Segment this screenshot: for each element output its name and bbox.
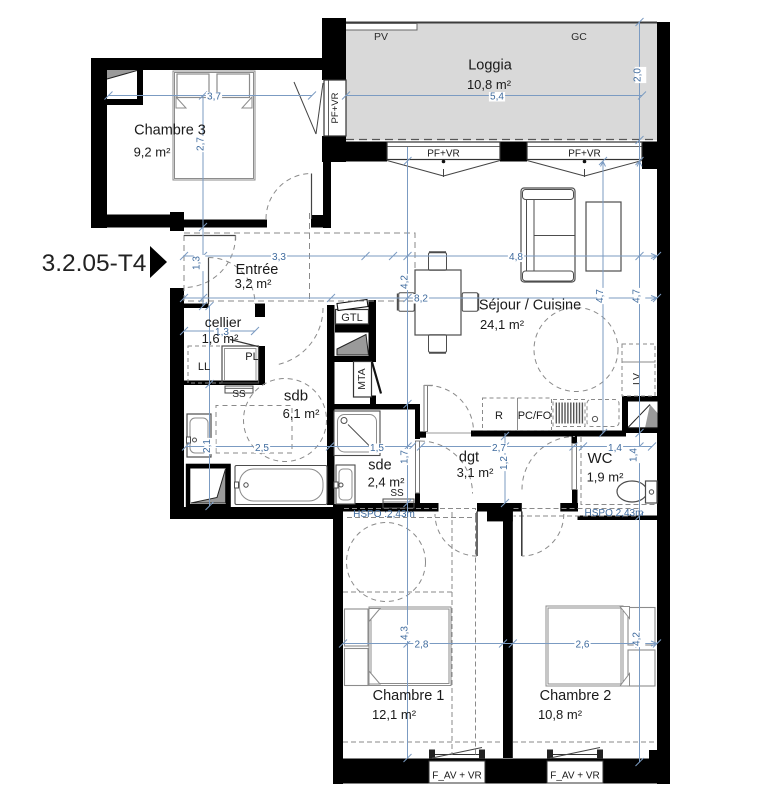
svg-text:2,5: 2,5 xyxy=(255,443,269,454)
svg-text:4,2: 4,2 xyxy=(632,632,643,646)
svg-text:4,3: 4,3 xyxy=(400,626,411,640)
svg-text:9,2 m²: 9,2 m² xyxy=(134,145,172,160)
svg-text:PF+VR: PF+VR xyxy=(427,149,460,160)
svg-text:SS: SS xyxy=(390,488,404,499)
svg-text:2,7: 2,7 xyxy=(196,137,207,151)
svg-text:Chambre 3: Chambre 3 xyxy=(134,123,206,139)
svg-text:F_AV + VR: F_AV + VR xyxy=(432,771,482,782)
svg-text:1,5: 1,5 xyxy=(370,443,384,454)
svg-text:2,0: 2,0 xyxy=(633,68,644,82)
svg-text:SS: SS xyxy=(232,389,246,400)
svg-text:5,4: 5,4 xyxy=(490,92,504,103)
svg-text:1,6 m²: 1,6 m² xyxy=(202,331,240,346)
svg-text:PF+VR: PF+VR xyxy=(568,149,601,160)
svg-text:MTA: MTA xyxy=(356,368,368,389)
svg-text:LV: LV xyxy=(631,373,643,385)
svg-text:4,7: 4,7 xyxy=(595,289,606,303)
svg-text:4,8: 4,8 xyxy=(509,252,523,263)
svg-text:PL: PL xyxy=(245,351,258,363)
svg-text:sde: sde xyxy=(368,458,391,474)
svg-text:1,9 m²: 1,9 m² xyxy=(587,470,625,485)
svg-text:1,2: 1,2 xyxy=(499,456,510,470)
svg-text:3,2 m²: 3,2 m² xyxy=(235,276,273,291)
svg-text:3,7: 3,7 xyxy=(207,92,221,103)
svg-text:1,3: 1,3 xyxy=(192,256,203,270)
svg-text:2,8: 2,8 xyxy=(415,640,429,651)
svg-text:1,4: 1,4 xyxy=(629,448,640,462)
svg-text:PC/FO: PC/FO xyxy=(518,410,552,422)
svg-text:Séjour / Cuisine: Séjour / Cuisine xyxy=(479,298,581,314)
svg-text:PF+VR: PF+VR xyxy=(330,92,341,123)
svg-text:12,1 m²: 12,1 m² xyxy=(372,707,417,722)
svg-text:cellier: cellier xyxy=(205,314,242,330)
svg-text:3,1 m²: 3,1 m² xyxy=(457,465,495,480)
svg-text:4,7: 4,7 xyxy=(632,289,643,303)
svg-text:1,7: 1,7 xyxy=(400,450,411,464)
svg-text:F_AV + VR: F_AV + VR xyxy=(550,771,600,782)
svg-text:3.2.05-T4: 3.2.05-T4 xyxy=(42,250,147,277)
svg-text:Chambre 1: Chambre 1 xyxy=(373,688,445,704)
svg-text:HSPO 2,43m: HSPO 2,43m xyxy=(585,508,644,519)
svg-text:2,1: 2,1 xyxy=(202,439,213,453)
svg-text:LL: LL xyxy=(198,361,210,373)
svg-text:sdb: sdb xyxy=(284,388,308,405)
svg-text:WC: WC xyxy=(588,450,613,467)
svg-text:24,1 m²: 24,1 m² xyxy=(480,317,525,332)
svg-text:10,8 m²: 10,8 m² xyxy=(538,707,583,722)
svg-text:GC: GC xyxy=(571,31,587,43)
svg-text:10,8 m²: 10,8 m² xyxy=(467,77,512,92)
svg-text:6,1 m²: 6,1 m² xyxy=(283,406,321,421)
svg-text:dgt: dgt xyxy=(459,450,479,466)
svg-text:2,7: 2,7 xyxy=(492,443,506,454)
svg-text:8,2: 8,2 xyxy=(414,294,428,305)
svg-text:4,2: 4,2 xyxy=(400,275,411,289)
svg-text:2,6: 2,6 xyxy=(576,640,590,651)
svg-text:HSPO :2,43m: HSPO :2,43m xyxy=(353,509,415,520)
svg-text:PV: PV xyxy=(374,31,388,43)
svg-text:R: R xyxy=(495,410,503,422)
svg-text:GTL: GTL xyxy=(341,312,362,324)
svg-text:Chambre 2: Chambre 2 xyxy=(540,688,612,704)
svg-text:Loggia: Loggia xyxy=(468,58,512,74)
